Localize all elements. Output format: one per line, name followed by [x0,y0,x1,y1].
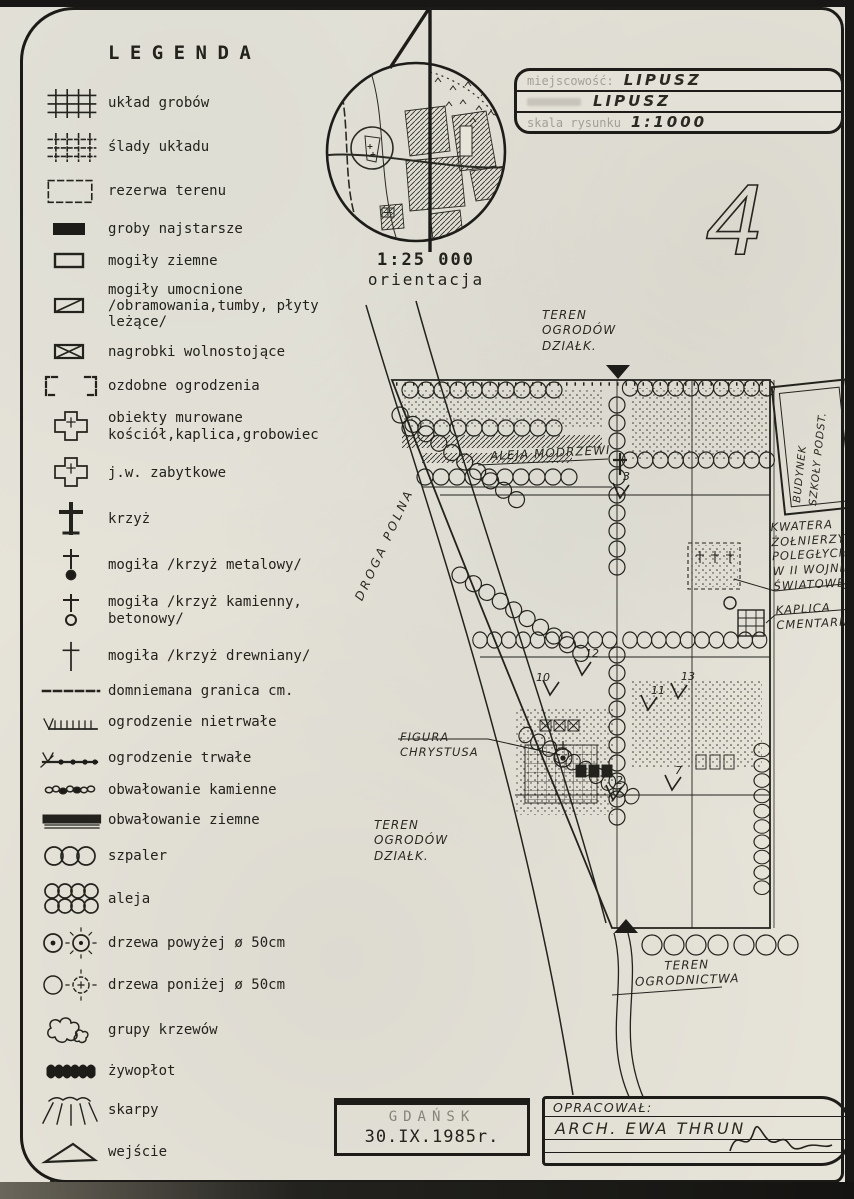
orientation-scale: 1:25 000 [336,250,516,270]
legend-item: aleja [34,881,336,917]
title-block-row-locality: miejscowość: LIPUSZ [517,71,841,92]
date-block: GDAŃSK 30.IX.1985r. [334,1098,530,1156]
hedge-icon [34,1059,108,1083]
locality-label: miejscowość: [527,74,614,88]
stone-embankment-icon [34,781,108,799]
scanned-cemetery-plan: LEGENDA układ grobów ślady układu rezerw… [0,0,854,1199]
legend-item: domniemana granica cm. [34,683,336,699]
title-block-row-commune: LIPUSZ [517,92,841,113]
commune-value: LIPUSZ [593,92,671,111]
svg-text:10: 10 [536,671,550,684]
legend-item: ogrodzenie trwałe [34,745,336,771]
svg-text:12: 12 [585,647,599,660]
slopes-icon [34,1093,108,1127]
svg-text:13: 13 [681,670,695,683]
legend-item: ogrodzenie nietrwałe [34,709,336,735]
shrub-groups-icon [34,1011,108,1049]
legend-item: mogiła /krzyż drewniany/ [34,639,336,673]
legend-item: żywopłot [34,1059,336,1083]
legend-item: mogiły ziemne [34,250,336,272]
sheet-number: 4 [698,158,784,270]
horticulture-label: TEREN OGRODNICTWA [612,955,763,991]
ornamental-fences-icon [34,373,108,399]
scale-value: 1:1000 [631,113,707,132]
legend-item: krzyż [34,501,336,537]
legend-item: drzewa poniżej ø 50cm [34,969,336,1001]
reinforced-graves-icon [34,295,108,317]
soldiers-quarter-label: KWATERA ŻOŁNIERZY POLEGŁYCH W II WOJNIE … [770,516,854,594]
scan-edge-right [845,0,854,1199]
legend-item: obwałowanie kamienne [34,781,336,799]
legend-item: mogiły umocnione /obramowania,tumby, pły… [34,282,336,331]
reserve-area-icon [34,174,108,208]
legend-item: obwałowanie ziemne [34,809,336,831]
alley-icon [34,881,108,917]
legend-item: rezerwa terenu [34,174,336,208]
chapel-label: KAPLICA CMENTARNA [775,599,854,633]
city-label: GDAŃSK [337,1109,527,1125]
freestanding-tombstones-icon [34,341,108,363]
temporary-fence-icon [34,709,108,735]
svg-text:2: 2 [616,774,623,787]
school-label-line2: SZKOŁY PODST. [807,411,829,506]
scan-edge-bottom [0,1182,854,1199]
legend-item: ozdobne ogrodzenia [34,373,336,399]
title-block-row-scale: skala rysunku 1:1000 [517,113,841,132]
svg-text:11: 11 [651,684,665,697]
locality-value: LIPUSZ [624,71,702,90]
cross-icon [34,501,108,537]
legend-item: groby najstarsze [34,218,336,240]
signature [726,1117,836,1159]
illegible-stamp [527,98,581,106]
site-plan: BUDYNEK SZKOŁY PODST. 3 10 11 12 13 7 2 [330,295,854,1105]
earth-embankment-icon [34,809,108,831]
masonry-buildings-icon [34,409,108,445]
bottom-path [614,933,644,1099]
metal-cross-grave-icon [34,547,108,583]
wooden-cross-grave-icon [34,639,108,673]
legend-title: LEGENDA [108,42,336,64]
oldest-graves-icon [34,218,108,240]
prepared-by-label: OPRACOWAŁ: [553,1100,653,1116]
orientation-caption: 1:25 000 orientacja [336,250,516,289]
legend-item: skarpy [34,1093,336,1127]
legend-item: układ grobów [34,86,336,120]
title-block: miejscowość: LIPUSZ LIPUSZ skala rysunku… [514,68,844,134]
photo-marker: 10 [536,671,559,695]
christ-figure-label: FIGURA CHRYSTUSA [400,730,479,759]
svg-text:3: 3 [623,470,630,483]
orientation-label: orientacja [336,270,516,289]
grid-traces-icon [34,130,108,164]
scale-label: skala rysunku [527,116,621,130]
north-arrow [368,0,458,258]
large-trees-icon [34,927,108,959]
legend-item: j.w. zabytkowe [34,455,336,491]
allotments-label-left: TEREN OGRODÓW DZIAŁK. [374,818,448,864]
stone-cross-grave-icon [34,593,108,629]
presumed-boundary-icon [34,684,108,698]
architect-name: ARCH. EWA THRUN [555,1119,746,1139]
svg-text:7: 7 [675,764,682,777]
svg-text:4: 4 [706,164,762,270]
school-label-line1: BUDYNEK [791,444,809,503]
tree-rows [389,380,798,955]
date-label: 30.IX.1985r. [337,1127,527,1147]
legend-item: mogiła /krzyż kamienny, betonowy/ [34,593,336,629]
legend-item: grupy krzewów [34,1011,336,1049]
scan-edge-top [0,0,854,7]
credit-block: OPRACOWAŁ: ARCH. EWA THRUN [542,1096,851,1166]
tree-row-icon [34,841,108,871]
legend-item: ślady układu [34,130,336,164]
earth-graves-icon [34,250,108,272]
legend-item: wejście [34,1137,336,1167]
grave-grid-icon [34,86,108,120]
legend-item: mogiła /krzyż metalowy/ [34,547,336,583]
chapel-building [724,597,764,636]
permanent-fence-icon [34,745,108,771]
legend-item: obiekty murowane kościół,kaplica,gro­bow… [34,409,336,445]
legend-item: szpaler [34,841,336,871]
entrance-icon [34,1137,108,1167]
legend: LEGENDA układ grobów ślady układu rezerw… [34,36,336,1199]
small-trees-icon [34,969,108,1001]
legend-item: nagrobki wolnostojące [34,341,336,363]
allotments-label-top: TEREN OGRODÓW DZIAŁK. [542,308,616,354]
legend-item: drzewa powyżej ø 50cm [34,927,336,959]
historic-buildings-icon [34,455,108,491]
